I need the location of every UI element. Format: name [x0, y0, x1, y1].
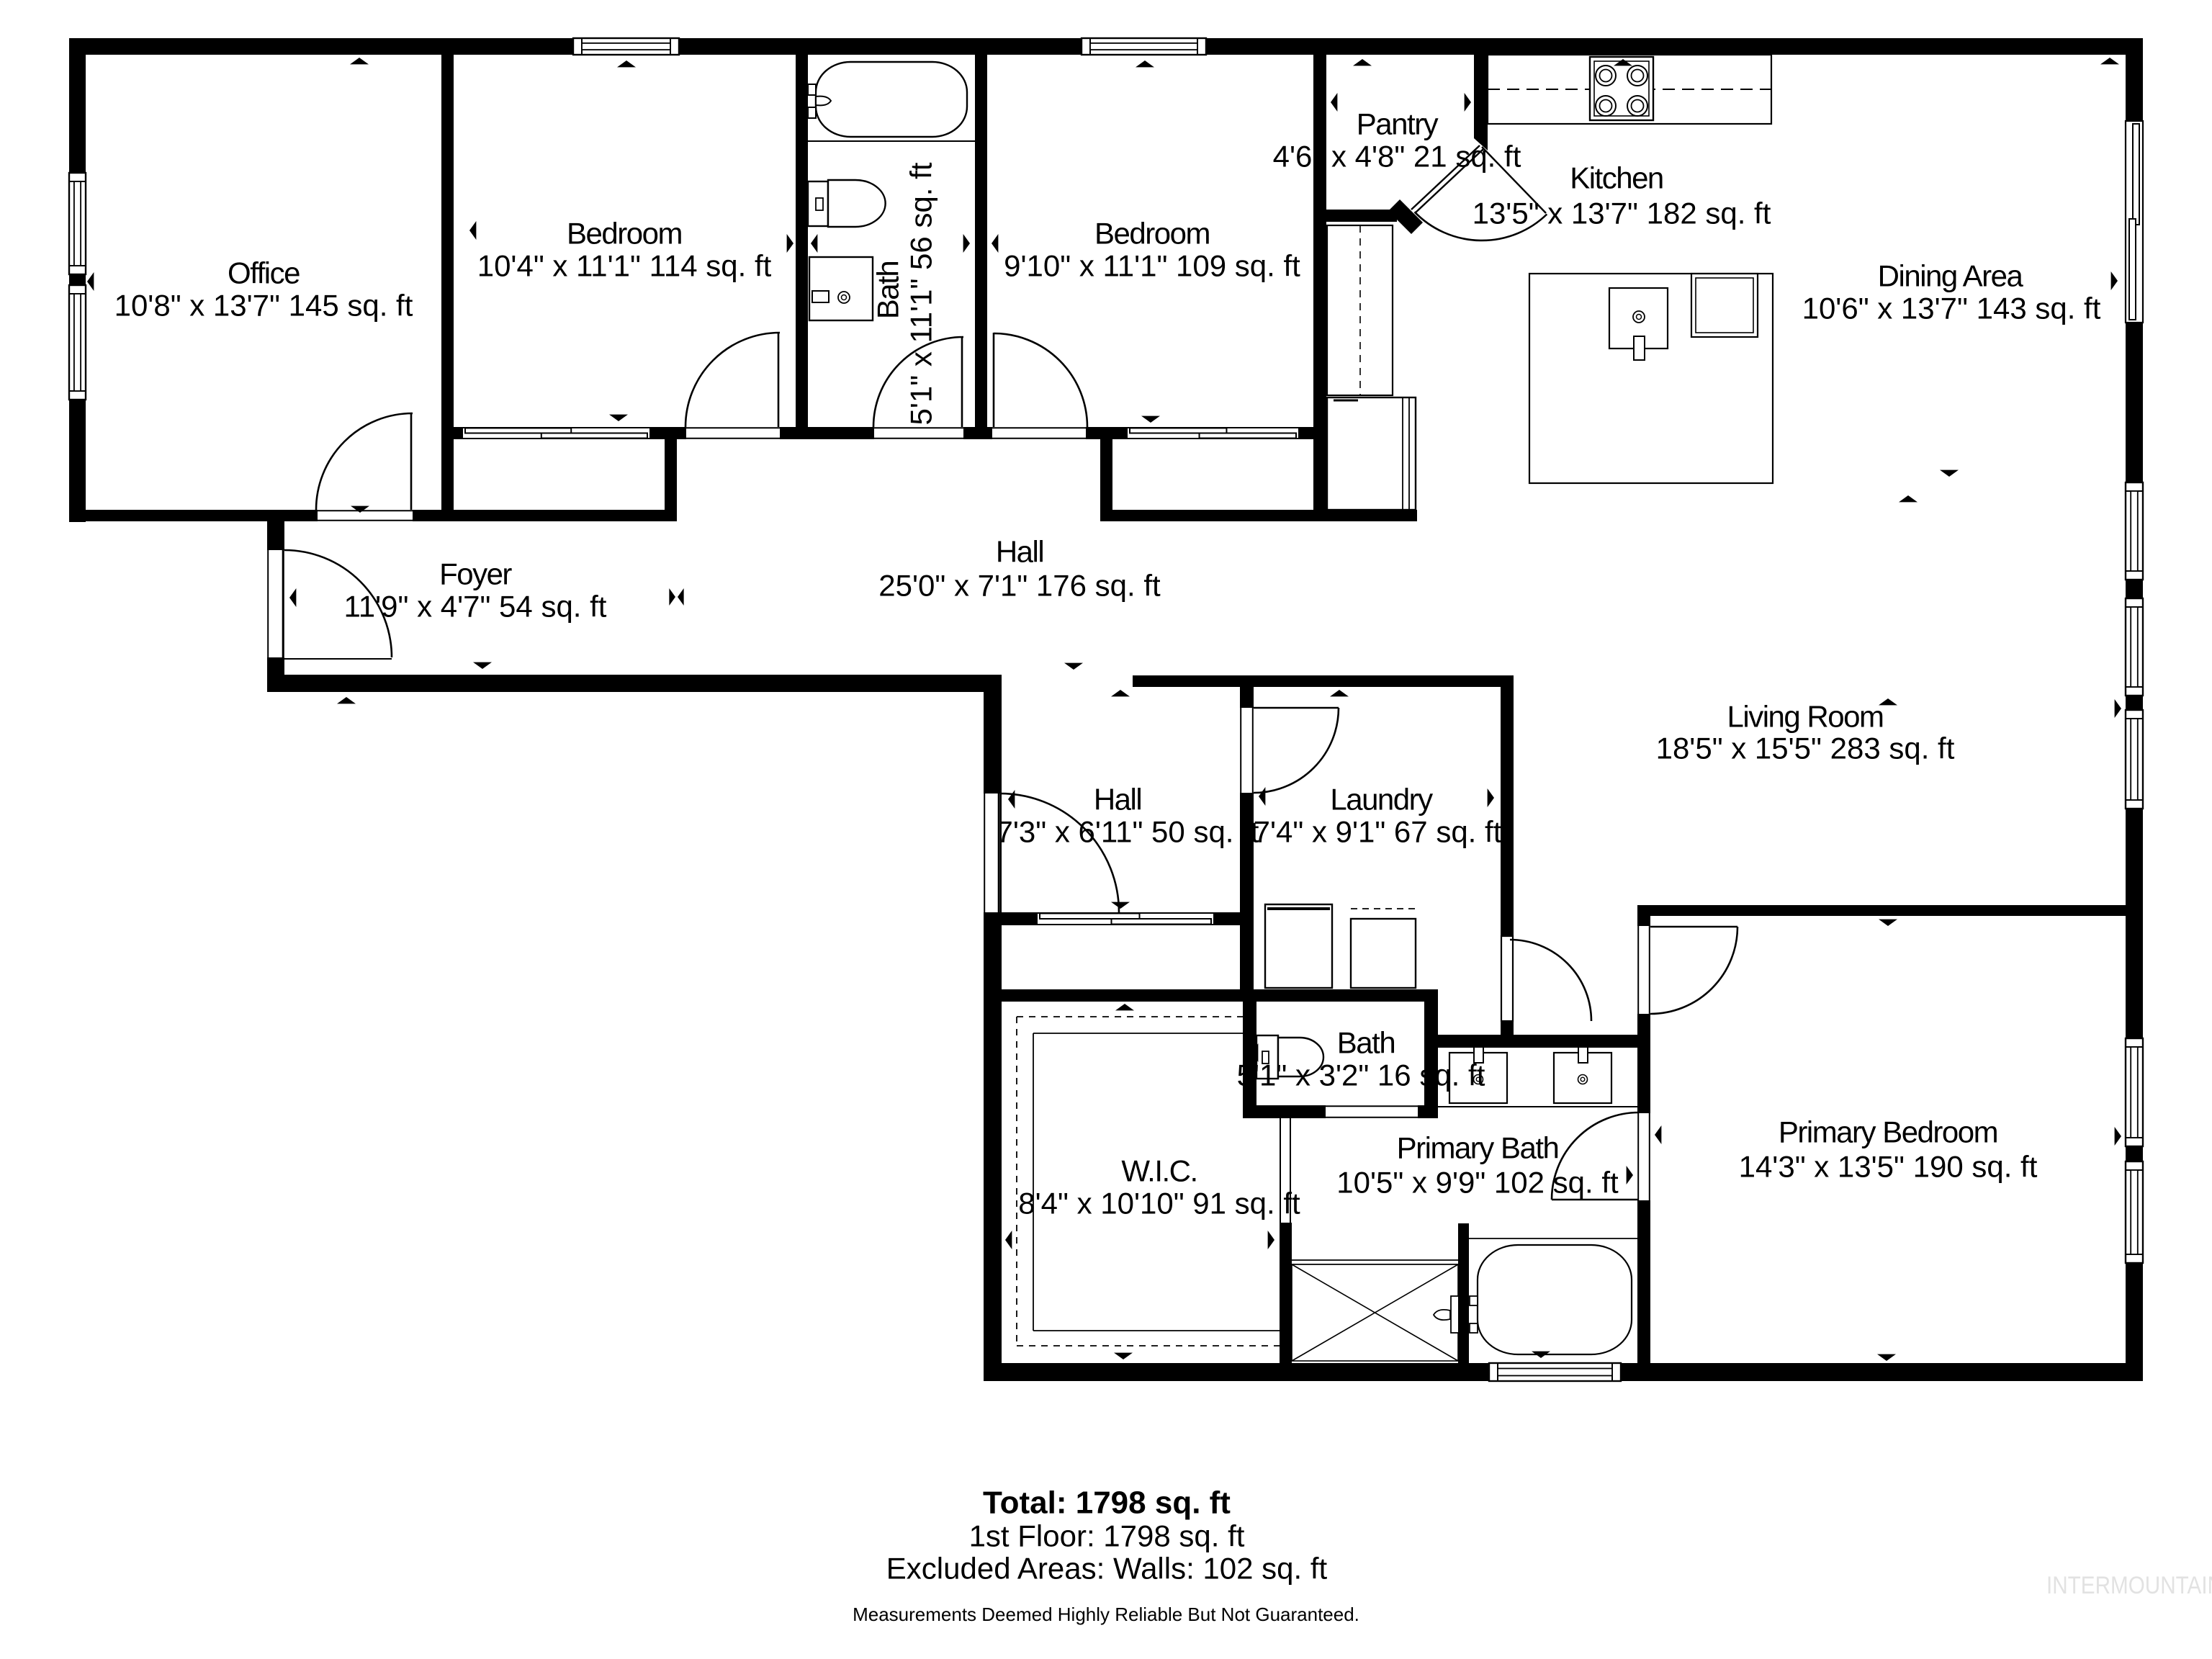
svg-text:18'5" x 15'5" 283 sq. ft: 18'5" x 15'5" 283 sq. ft: [1656, 732, 1955, 765]
svg-text:5'1" x 11'1" 56 sq. ft: 5'1" x 11'1" 56 sq. ft: [904, 162, 938, 425]
svg-text:10'4" x 11'1" 114 sq. ft: 10'4" x 11'1" 114 sq. ft: [477, 249, 772, 283]
svg-text:Primary Bedroom: Primary Bedroom: [1779, 1115, 1997, 1149]
svg-text:9'10" x 11'1" 109 sq. ft: 9'10" x 11'1" 109 sq. ft: [1004, 249, 1300, 283]
svg-text:7'3" x 6'11" 50 sq. ft: 7'3" x 6'11" 50 sq. ft: [997, 815, 1259, 849]
svg-text:7'4" x 9'1" 67 sq. ft: 7'4" x 9'1" 67 sq. ft: [1254, 815, 1502, 849]
svg-text:10'8" x 13'7" 145 sq. ft: 10'8" x 13'7" 145 sq. ft: [114, 289, 413, 323]
svg-text:INTERMOUNTAIN: INTERMOUNTAIN: [2046, 1572, 2212, 1599]
svg-text:Kitchen: Kitchen: [1570, 161, 1663, 195]
svg-text:Laundry: Laundry: [1330, 783, 1433, 817]
svg-text:Dining Area: Dining Area: [1878, 259, 2024, 293]
svg-text:5'1" x 3'2" 16 sq. ft: 5'1" x 3'2" 16 sq. ft: [1237, 1058, 1485, 1092]
svg-text:Foyer: Foyer: [439, 557, 512, 591]
svg-text:Bedroom: Bedroom: [567, 217, 682, 251]
svg-text:Bedroom: Bedroom: [1094, 217, 1210, 251]
svg-text:Bath: Bath: [1337, 1026, 1395, 1060]
svg-text:Excluded Areas: Walls: 102 sq.: Excluded Areas: Walls: 102 sq. ft: [886, 1552, 1328, 1586]
svg-text:10'5" x 9'9" 102 sq. ft: 10'5" x 9'9" 102 sq. ft: [1336, 1166, 1619, 1200]
svg-text:Measurements Deemed Highly Rel: Measurements Deemed Highly Reliable But …: [853, 1604, 1359, 1625]
svg-text:13'5" x 13'7" 182 sq. ft: 13'5" x 13'7" 182 sq. ft: [1473, 197, 1771, 230]
svg-text:1st Floor: 1798 sq. ft: 1st Floor: 1798 sq. ft: [969, 1519, 1245, 1553]
svg-text:Office: Office: [228, 256, 300, 290]
svg-text:W.I.C.: W.I.C.: [1121, 1154, 1197, 1188]
svg-text:10'6" x 13'7" 143 sq. ft: 10'6" x 13'7" 143 sq. ft: [1802, 292, 2101, 325]
svg-text:Bath: Bath: [871, 261, 905, 319]
svg-text:Primary Bath: Primary Bath: [1397, 1131, 1559, 1165]
svg-text:Total: 1798 sq. ft: Total: 1798 sq. ft: [983, 1485, 1231, 1521]
svg-text:8'4" x 10'10" 91 sq. ft: 8'4" x 10'10" 91 sq. ft: [1018, 1187, 1300, 1220]
svg-text:14'3" x 13'5" 190 sq. ft: 14'3" x 13'5" 190 sq. ft: [1739, 1150, 2038, 1184]
svg-text:25'0" x 7'1" 176 sq. ft: 25'0" x 7'1" 176 sq. ft: [878, 569, 1161, 603]
svg-text:Hall: Hall: [1094, 783, 1141, 817]
svg-text:Hall: Hall: [996, 535, 1043, 569]
svg-text:Pantry: Pantry: [1357, 107, 1439, 141]
svg-text:Living Room: Living Room: [1727, 700, 1884, 734]
